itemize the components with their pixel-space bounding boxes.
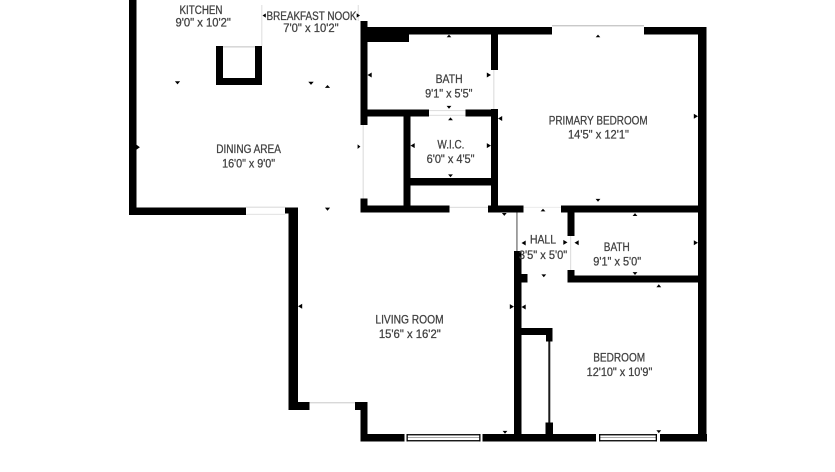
svg-text:7'0" x 10'2": 7'0" x 10'2" [283,21,338,35]
svg-text:BEDROOM: BEDROOM [593,350,645,364]
svg-text:BATH: BATH [604,240,630,254]
svg-text:6'0" x 4'5": 6'0" x 4'5" [427,152,475,166]
svg-text:DINING AREA: DINING AREA [216,142,281,156]
svg-text:W.I.C.: W.I.C. [437,137,464,151]
svg-text:HALL: HALL [530,233,556,247]
svg-text:LIVING ROOM: LIVING ROOM [375,313,443,327]
svg-text:PRIMARY BEDROOM: PRIMARY BEDROOM [549,114,648,128]
svg-text:9'0" x 10'2": 9'0" x 10'2" [176,15,231,29]
svg-text:9'1" x 5'0": 9'1" x 5'0" [593,255,641,269]
svg-text:3'5" x 5'0": 3'5" x 5'0" [519,248,567,262]
svg-text:BATH: BATH [436,72,463,86]
svg-text:9'1" x 5'5": 9'1" x 5'5" [425,86,472,100]
svg-text:16'0" x 9'0": 16'0" x 9'0" [222,157,275,171]
svg-text:15'6" x 16'2": 15'6" x 16'2" [379,327,441,341]
svg-text:12'10" x 10'9": 12'10" x 10'9" [587,365,653,379]
svg-text:14'5" x 12'1": 14'5" x 12'1" [568,128,629,142]
